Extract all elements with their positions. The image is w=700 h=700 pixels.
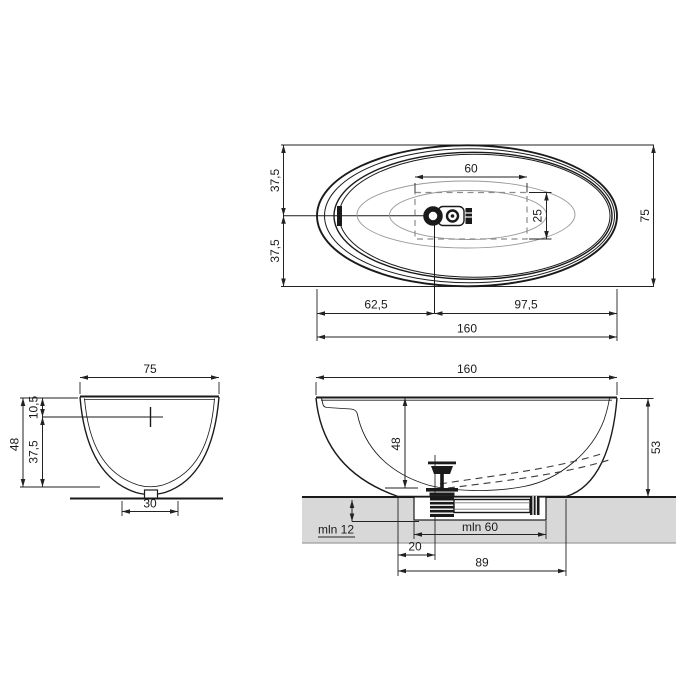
plan-half-width-top-label: 37,5 xyxy=(268,168,282,192)
bathtub-end-outline xyxy=(80,397,219,499)
end-axis-to-bottom-label: 37,5 xyxy=(27,440,41,464)
plan-drain-to-right-label: 97,5 xyxy=(514,298,538,312)
end-inner-depth-label: 48 xyxy=(8,438,22,452)
bathtub-side-outline xyxy=(316,398,617,497)
hidden-bottom-edge-2 xyxy=(436,460,609,490)
side-inner-depth-label: 48 xyxy=(389,437,403,451)
recess-length-label: mln 60 xyxy=(462,520,498,534)
end-overall-width-label: 75 xyxy=(143,362,157,376)
end-rim-to-axis-label: 10,5 xyxy=(27,395,41,419)
base-to-drain-label: 20 xyxy=(408,540,422,554)
drain-trap xyxy=(430,497,454,518)
plan-overall-length-label: 160 xyxy=(457,322,477,336)
side-overall-height-label: 53 xyxy=(649,441,663,455)
plan-inner-width-label: 25 xyxy=(531,209,545,223)
recess-depth-label: mln 12 xyxy=(318,523,354,537)
drawing-canvas: 60 25 37,5 37,5 75 62,5 97,5 160 75 xyxy=(0,0,700,700)
end-elevation-view: 75 48 10,5 37,5 30 xyxy=(8,362,224,516)
drain-waste-assembly xyxy=(426,455,540,560)
bathtub-dimension-drawing: 60 25 37,5 37,5 75 62,5 97,5 160 75 xyxy=(0,0,700,700)
plan-drain-from-left-label: 62,5 xyxy=(364,298,388,312)
plan-view: 60 25 37,5 37,5 75 62,5 97,5 160 xyxy=(268,145,654,341)
overflow-marker xyxy=(337,206,342,226)
side-elevation-view: 160 xyxy=(302,362,676,576)
drain-pipe xyxy=(454,500,530,513)
plan-overall-width-label: 75 xyxy=(638,209,652,223)
drain-fitting-plan xyxy=(426,207,472,226)
base-length-label: 89 xyxy=(475,556,489,570)
side-overall-length-label: 160 xyxy=(457,362,477,376)
hidden-bottom-edge-1 xyxy=(440,453,604,484)
plan-half-width-bottom-label: 37,5 xyxy=(268,239,282,263)
drain-axis-cross xyxy=(42,407,163,427)
drain-pipe-coupling xyxy=(530,496,540,515)
plan-inner-length-label: 60 xyxy=(464,162,478,176)
end-base-width-label: 30 xyxy=(143,497,157,511)
